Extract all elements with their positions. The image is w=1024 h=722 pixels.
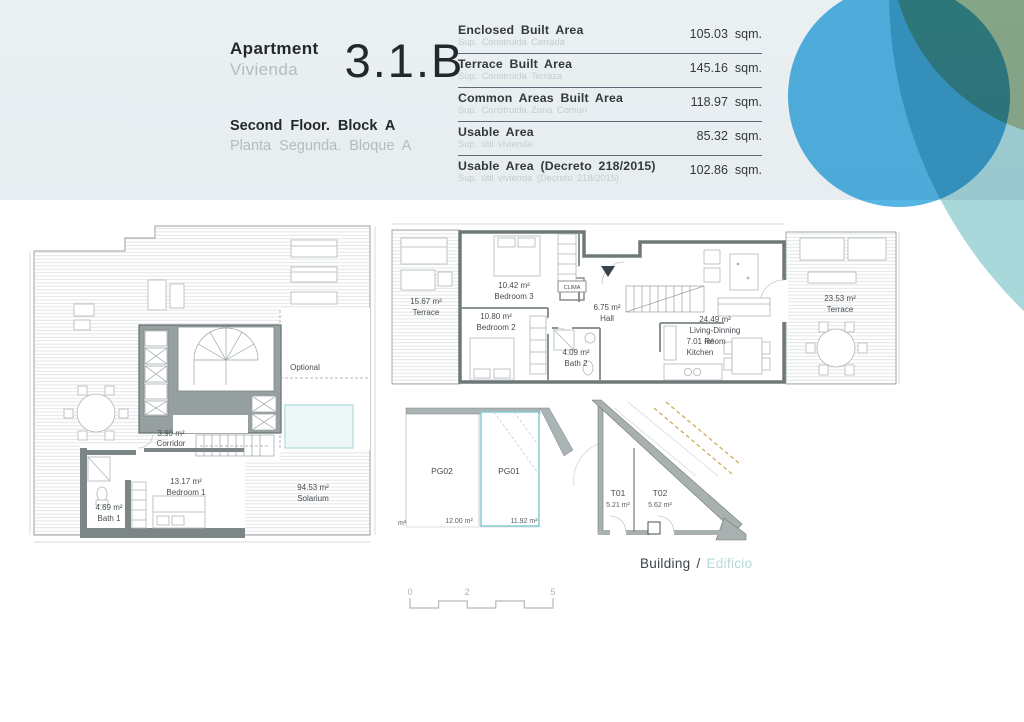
storage-door-arcs [610,516,674,532]
title-block: Apartment Vivienda 3.1.B Second Floor. B… [230,38,464,156]
room-label-bedroom3-area: 10.42 m² [498,281,530,290]
storage-walls [592,400,746,540]
building-label-separator: / [696,556,700,571]
row-value: 145.16 [680,61,728,75]
row-value: 118.97 [680,95,728,109]
areas-table: Enclosed Built Area Sup. Construida Cerr… [458,20,762,189]
room-label-bedroom1: Bedroom 1 [166,488,206,497]
optional-label: Optional [290,363,320,372]
room-label-terrace-left: Terrace [413,308,440,317]
room-label-bedroom2: Bedroom 2 [476,323,516,332]
parking-area-pg02: 12.00 m² [445,518,473,525]
row-label-es: Sup. Construida Cerrada [458,37,584,48]
row-unit: sqm. [735,61,762,75]
room-label-living: Living-Dinning [690,326,741,335]
row-label-en: Common Areas Built Area [458,91,623,105]
row-value: 85.32 [680,129,728,143]
building-label: Building/Edificio [640,556,752,571]
scale-bar: 0 2 5 [402,586,562,620]
room-label-bath2: Bath 2 [564,359,588,368]
scale-tick-2: 2 [464,587,469,597]
room-label-corridor: Corridor [157,439,186,448]
unit-number: 3.1.B [345,36,465,86]
row-label-en: Terrace Built Area [458,57,572,71]
floor-label-es: Planta Segunda. Bloque A [230,136,464,156]
row-unit: sqm. [735,95,762,109]
row-value: 105.03 [680,27,728,41]
row-label-en: Usable Area (Decreto 218/2015) [458,159,656,173]
scale-bar-line [410,598,553,608]
main-floor-plan: CLIMA 15.67 m² Terrace 10.42 m² Bedroom … [388,222,902,400]
room-label-solarium: Solarium [297,494,329,503]
parking-area-pg01: 11.92 m² [510,518,538,525]
room-label-terrace-right: Terrace [827,305,854,314]
room-label-corridor-area: 3.90 m² [157,429,184,438]
parking-code-pg01: PG01 [498,466,520,476]
storage-code-t01: T01 [611,488,626,498]
floor-label-en: Second Floor. Block A [230,116,464,136]
room-label-hall-area: 6.75 m² [593,303,620,312]
storage-code-t02: T02 [653,488,668,498]
room-label-hall: Hall [600,314,614,323]
stair-core [139,325,281,433]
clima-label: CLIMA [564,285,581,291]
table-row: Common Areas Built Area Sup. Construida … [458,87,762,121]
parking-plan: PG02 PG01 12.00 m² 11.92 m² m² [396,398,576,538]
table-row: Usable Area Sup. útil vivienda 85.32sqm. [458,121,762,155]
row-label-es: Sup. Construida Zona Común [458,105,623,116]
vivienda-label: Vivienda [230,59,319,80]
row-label-es: Sup. útil vivienda [458,139,534,150]
building-label-en: Building [640,556,690,571]
row-unit: sqm. [735,129,762,143]
table-row: Usable Area (Decreto 218/2015) Sup. útil… [458,155,762,189]
terrace-left-furniture [401,238,452,290]
table-row: Enclosed Built Area Sup. Construida Cerr… [458,20,762,53]
row-label-es: Sup. útil vivienda (Decreto 218/2015) [458,173,656,184]
row-unit: sqm. [735,27,762,41]
row-label-es: Sup. Construida Terraza [458,71,572,82]
room-label-bath2-area: 4.09 m² [562,348,589,357]
room-label-solarium-area: 94.53 m² [297,483,329,492]
storage-shaft [648,522,660,534]
room-label-living-2: Room [704,337,726,346]
room-label-terrace-left-area: 15.67 m² [410,297,442,306]
terrace-door-opening [780,280,788,322]
straight-stair [196,435,274,456]
parking-unit-note: m² [398,520,407,527]
room-label-bedroom3: Bedroom 3 [494,292,534,301]
scale-tick-0: 0 [407,587,412,597]
parking-code-pg02: PG02 [431,466,453,476]
storage-area-t01: 5.21 m² [606,502,630,509]
row-unit: sqm. [735,163,762,177]
row-value: 102.86 [680,163,728,177]
room-label-kitchen: Kitchen [687,348,714,357]
storage-plan: T01 5.21 m² T02 5.62 m² [568,396,760,544]
room-label-bath1: Bath 1 [97,514,121,523]
room-label-living-area: 24.49 m² [699,315,731,324]
row-label-en: Enclosed Built Area [458,23,584,37]
table-row: Terrace Built Area Sup. Construida Terra… [458,53,762,87]
apartment-label: Apartment [230,38,319,59]
room-label-bedroom2-area: 10.80 m² [480,312,512,321]
storage-area-t02: 5.62 m² [648,502,672,509]
building-label-es: Edificio [707,556,753,571]
room-label-bath1-area: 4.69 m² [95,503,122,512]
room-label-bedroom1-area: 13.17 m² [170,477,202,486]
solarium-plan: 3.90 m² Corridor 13.17 m² Bedroom 1 4.69… [28,220,380,550]
row-label-en: Usable Area [458,125,534,139]
room-label-terrace-right-area: 23.53 m² [824,294,856,303]
scale-tick-5: 5 [550,587,555,597]
